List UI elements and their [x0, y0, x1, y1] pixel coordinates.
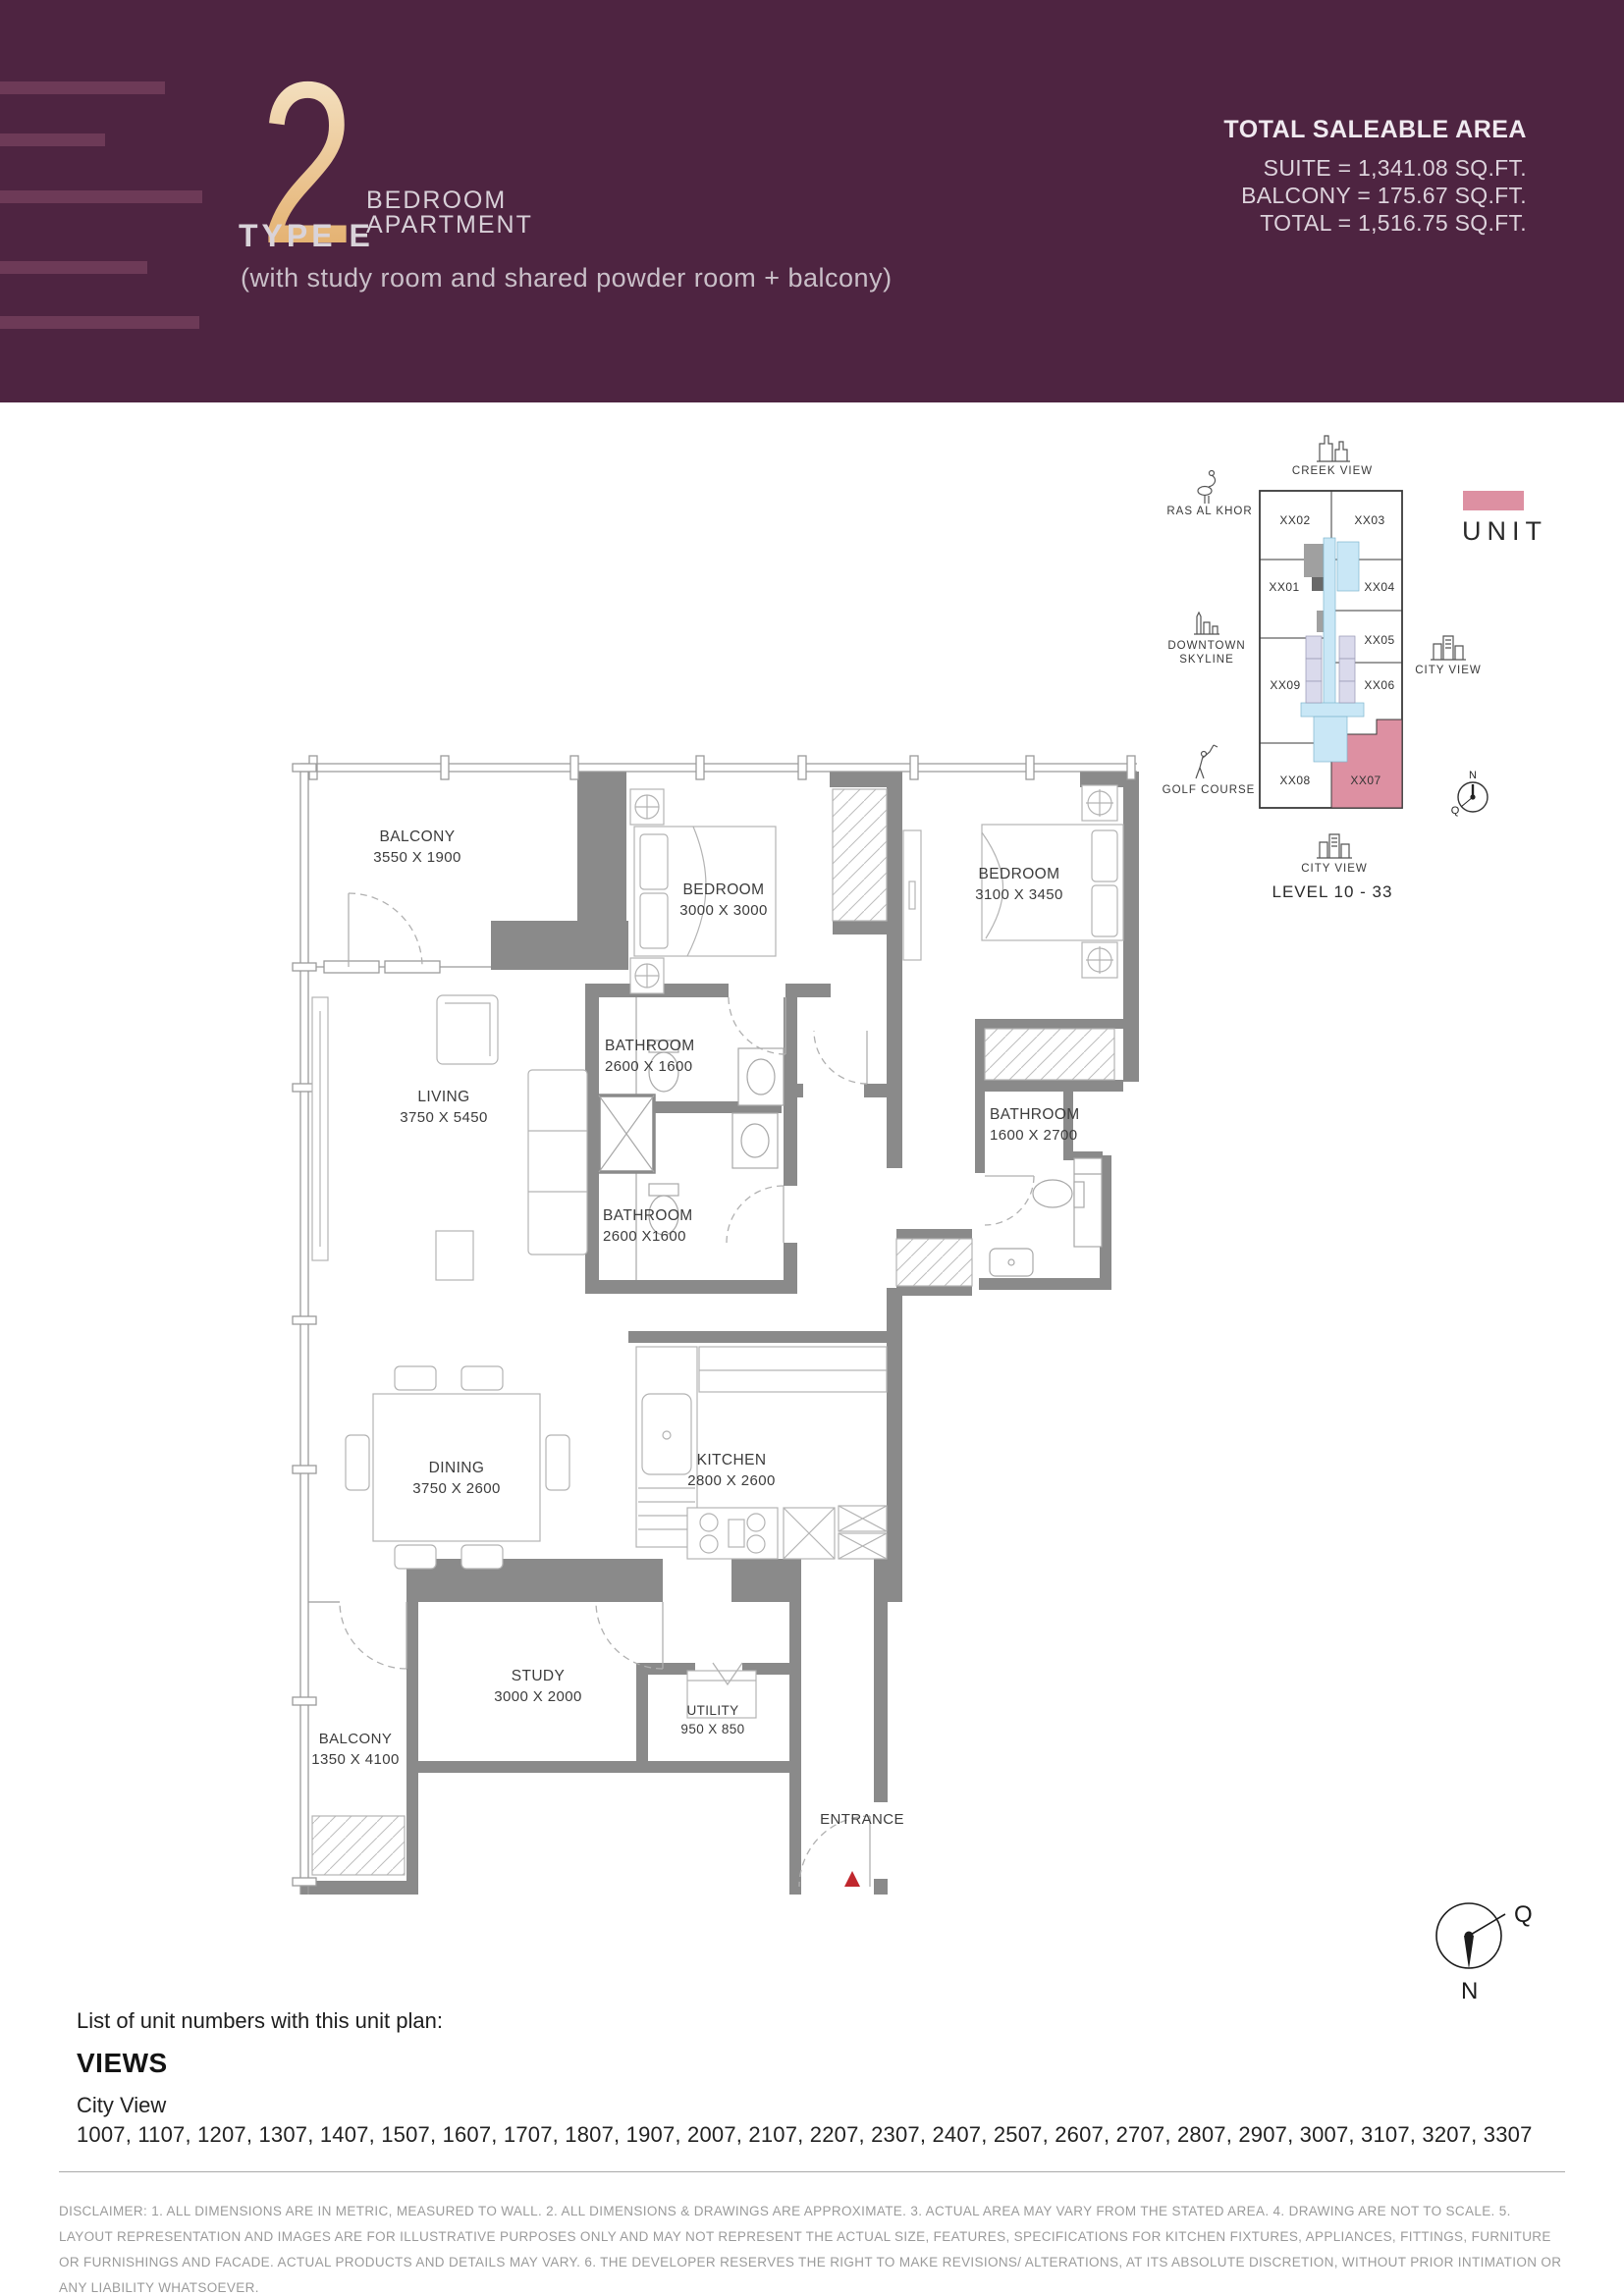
level-label: LEVEL 10 - 33: [1272, 882, 1393, 901]
key-plan-unit-label: XX01: [1269, 580, 1299, 594]
brochure-page: 2 BEDROOM APARTMENT TYPE E (with study r…: [0, 0, 1624, 2296]
disclaimer-text: DISCLAIMER: 1. ALL DIMENSIONS ARE IN MET…: [59, 2199, 1565, 2296]
room-label: LIVING: [417, 1089, 469, 1105]
compass-north-label: N: [1469, 770, 1477, 781]
key-plan: CREEK VIEW RAS AL KHOR DOWNTOWN SKYLINE …: [1129, 422, 1620, 923]
city-view-icon: [1431, 636, 1466, 660]
key-plan-unit-label: XX02: [1279, 513, 1310, 527]
golf-course-label: GOLF COURSE: [1163, 784, 1256, 796]
creek-view-label: CREEK VIEW: [1292, 465, 1373, 477]
room-label: ENTRANCE: [820, 1811, 904, 1828]
downtown-skyline-icon: [1194, 613, 1219, 634]
room-dim: 2800 X 2600: [687, 1472, 775, 1489]
footer-divider: [59, 2171, 1565, 2172]
room-dim: 1600 X 2700: [990, 1127, 1077, 1144]
downtown-label-line1: DOWNTOWN: [1167, 640, 1245, 652]
header-subtitle: (with study room and shared powder room …: [241, 263, 893, 294]
room-label: DINING: [429, 1460, 485, 1476]
room-dim: 2600 X 1600: [605, 1058, 692, 1075]
header-stripe: [0, 261, 147, 274]
key-plan-unit-label-highlighted: XX07: [1350, 774, 1380, 787]
unit-list-label: List of unit numbers with this unit plan…: [77, 2008, 443, 2034]
room-label: BALCONY: [380, 828, 456, 845]
key-plan-outline: XX02 XX03 XX01 XX04 XX05 XX09 XX06 XX08 …: [1260, 491, 1402, 808]
room-label: UTILITY: [686, 1703, 738, 1718]
city-view-bottom-label: CITY VIEW: [1301, 863, 1368, 875]
header-stripe: [0, 133, 105, 146]
key-plan-unit-label: XX03: [1354, 513, 1384, 527]
key-plan-compass: N Q: [1451, 770, 1488, 817]
city-view-icon: [1317, 834, 1352, 858]
wardrobe: [833, 789, 887, 921]
key-plan-unit-label: XX05: [1364, 633, 1394, 647]
header-title-line2: APARTMENT: [366, 213, 533, 238]
key-plan-unit-label: XX09: [1270, 678, 1300, 692]
header-stripe: [0, 316, 199, 329]
total-area: TOTAL = 1,516.75 SQ.FT.: [1223, 209, 1527, 237]
flamingo-icon: [1198, 471, 1216, 505]
room-label: BATHROOM: [990, 1106, 1080, 1123]
entrance-marker: [844, 1871, 860, 1887]
header-title: BEDROOM APARTMENT: [366, 188, 533, 238]
unit-numbers-list: 1007, 1107, 1207, 1307, 1407, 1507, 1607…: [77, 2122, 1533, 2148]
saleable-area-block: TOTAL SALEABLE AREA SUITE = 1,341.08 SQ.…: [1223, 116, 1527, 237]
plan-compass: Q N: [1404, 1865, 1542, 2012]
room-label: KITCHEN: [697, 1452, 767, 1468]
room-dim: 950 X 850: [680, 1722, 744, 1736]
compass-qibla-label: Q: [1451, 805, 1460, 817]
room-dim: 2600 X1600: [603, 1228, 686, 1245]
room-label: BATHROOM: [603, 1207, 693, 1224]
key-plan-unit-label: XX06: [1364, 678, 1394, 692]
suite-area: SUITE = 1,341.08 SQ.FT.: [1223, 154, 1527, 182]
room-dim: 3750 X 2600: [412, 1480, 500, 1497]
saleable-area-heading: TOTAL SALEABLE AREA: [1223, 116, 1527, 144]
room-dim: 3000 X 2000: [494, 1688, 581, 1705]
planter: [312, 1816, 405, 1875]
unit-legend-label: UNIT: [1462, 516, 1547, 546]
balcony-area: BALCONY = 175.67 SQ.FT.: [1223, 182, 1527, 209]
creek-view-icon: [1317, 436, 1350, 461]
header-band: 2 BEDROOM APARTMENT TYPE E (with study r…: [0, 0, 1624, 402]
header-stripe: [0, 81, 165, 94]
city-view-right-label: CITY VIEW: [1415, 665, 1482, 676]
unit-legend-swatch: [1463, 491, 1524, 510]
view-name: City View: [77, 2093, 166, 2118]
room-label: BEDROOM: [979, 866, 1060, 882]
room-dim: 3100 X 3450: [975, 886, 1062, 903]
views-heading: VIEWS: [77, 2048, 168, 2079]
ras-al-khor-label: RAS AL KHOR: [1166, 506, 1252, 517]
room-dim: 3750 X 5450: [400, 1109, 487, 1126]
floor-plan: BALCONY 3550 X 1900 BEDROOM 3000 X 3000 …: [285, 736, 1149, 1914]
room-dim: 3000 X 3000: [679, 902, 767, 919]
room-label: STUDY: [512, 1668, 566, 1684]
downtown-label-line2: SKYLINE: [1179, 654, 1234, 666]
header-stripe: [0, 190, 202, 203]
hall-closet: [896, 1239, 972, 1286]
key-plan-unit-label: XX08: [1279, 774, 1310, 787]
wardrobe: [985, 1029, 1114, 1080]
compass-north-label: N: [1461, 1978, 1478, 2004]
room-dim: 3550 X 1900: [373, 849, 460, 866]
room-dim: 1350 X 4100: [311, 1751, 399, 1768]
room-label: BEDROOM: [683, 881, 765, 898]
room-label: BALCONY: [319, 1731, 393, 1747]
room-label: BATHROOM: [605, 1038, 695, 1054]
compass-qibla-label: Q: [1514, 1901, 1533, 1928]
golf-course-icon: [1196, 745, 1218, 778]
type-label: TYPE E: [239, 218, 374, 254]
key-plan-unit-label: XX04: [1364, 580, 1394, 594]
header-title-line1: BEDROOM: [366, 188, 533, 213]
